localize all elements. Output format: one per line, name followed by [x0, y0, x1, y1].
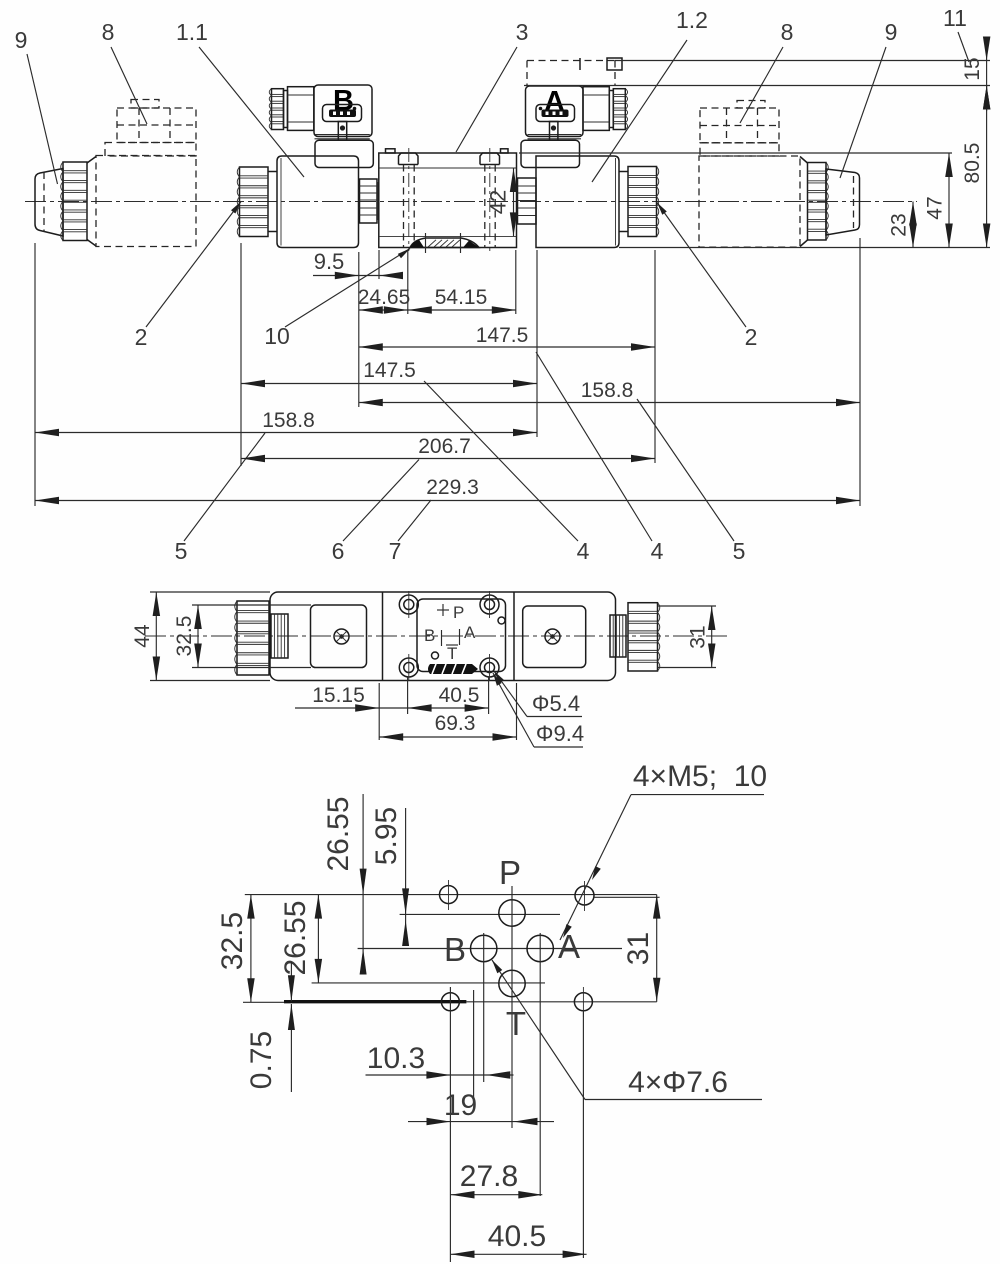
svg-text:7: 7 — [389, 538, 402, 564]
svg-text:158.8: 158.8 — [581, 379, 634, 402]
svg-text:19: 19 — [444, 1089, 477, 1122]
svg-text:31: 31 — [687, 625, 710, 648]
svg-text:27.8: 27.8 — [460, 1160, 518, 1193]
svg-text:Φ5.4: Φ5.4 — [532, 691, 580, 716]
svg-text:8: 8 — [102, 19, 115, 45]
svg-text:8: 8 — [781, 19, 794, 45]
svg-text:80.5: 80.5 — [961, 143, 984, 184]
svg-text:26.55: 26.55 — [279, 900, 312, 975]
svg-text:5.95: 5.95 — [370, 807, 403, 865]
svg-text:5: 5 — [733, 538, 746, 564]
svg-text:23: 23 — [888, 213, 911, 236]
svg-text:T: T — [447, 644, 457, 663]
svg-text:P: P — [499, 854, 521, 891]
svg-text:A: A — [558, 928, 580, 965]
svg-text:15.15: 15.15 — [312, 684, 365, 707]
svg-text:69.3: 69.3 — [435, 712, 476, 735]
svg-text:47: 47 — [924, 196, 947, 219]
svg-text:44: 44 — [131, 624, 154, 648]
svg-text:40.5: 40.5 — [488, 1220, 546, 1253]
svg-text:54.15: 54.15 — [435, 286, 488, 309]
svg-text:24.65: 24.65 — [358, 286, 411, 309]
svg-text:32.5: 32.5 — [173, 616, 196, 657]
svg-text:147.5: 147.5 — [476, 324, 529, 347]
svg-text:229.3: 229.3 — [426, 476, 479, 499]
svg-text:4: 4 — [577, 538, 590, 564]
svg-text:26.55: 26.55 — [322, 796, 355, 871]
svg-text:4×Φ7.6: 4×Φ7.6 — [628, 1066, 728, 1099]
svg-text:2: 2 — [135, 324, 148, 350]
svg-text:P: P — [453, 603, 464, 622]
svg-text:A: A — [464, 623, 476, 642]
svg-text:3: 3 — [516, 19, 529, 45]
svg-text:4×M5; 10: 4×M5; 10 — [633, 760, 767, 793]
svg-text:32.5: 32.5 — [216, 912, 249, 970]
svg-text:31: 31 — [622, 932, 655, 965]
svg-text:158.8: 158.8 — [262, 409, 315, 432]
svg-text:15: 15 — [961, 57, 984, 80]
svg-text:10.3: 10.3 — [367, 1042, 425, 1075]
svg-text:9.5: 9.5 — [314, 249, 345, 274]
svg-text:5: 5 — [175, 538, 188, 564]
svg-text:B: B — [444, 931, 466, 968]
svg-text:11: 11 — [943, 5, 967, 31]
svg-text:B: B — [424, 626, 435, 645]
svg-text:9: 9 — [885, 19, 898, 45]
svg-text:6: 6 — [332, 538, 345, 564]
svg-text:147.5: 147.5 — [363, 359, 416, 382]
svg-text:206.7: 206.7 — [418, 435, 471, 458]
svg-text:1.1: 1.1 — [176, 19, 208, 45]
svg-text:9: 9 — [15, 27, 28, 53]
svg-text:40.5: 40.5 — [439, 684, 480, 707]
svg-text:4: 4 — [651, 538, 664, 564]
svg-text:1.2: 1.2 — [676, 7, 708, 33]
svg-text:2: 2 — [745, 324, 758, 350]
svg-text:42: 42 — [486, 190, 511, 214]
svg-text:Φ9.4: Φ9.4 — [536, 721, 584, 746]
svg-text:0.75: 0.75 — [245, 1031, 278, 1089]
svg-text:T: T — [506, 1005, 526, 1042]
